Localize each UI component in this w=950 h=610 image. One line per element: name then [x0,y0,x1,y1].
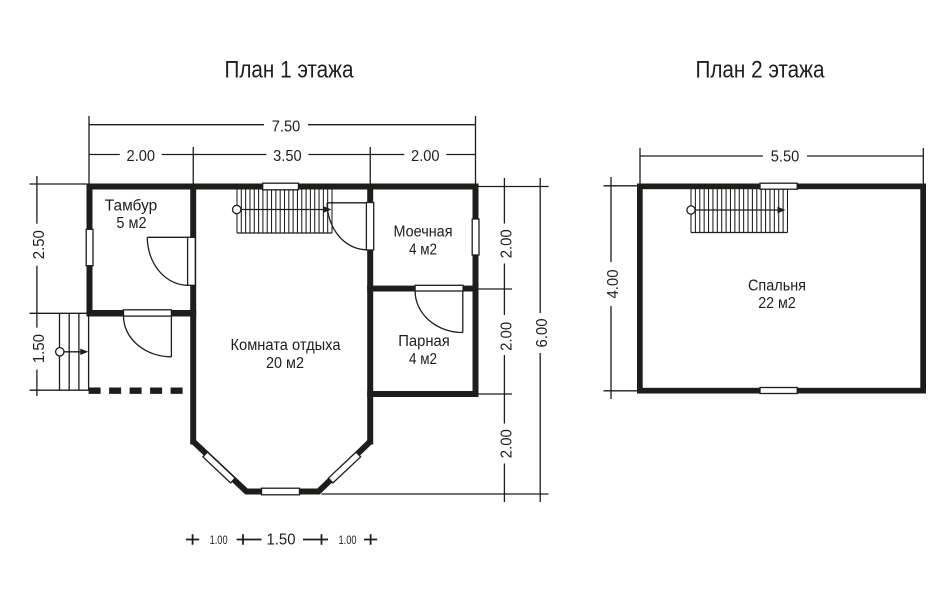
svg-text:4.00: 4.00 [605,269,622,298]
svg-text:2.00: 2.00 [411,148,440,165]
svg-text:4 м2: 4 м2 [409,351,437,368]
svg-text:Тамбур: Тамбур [105,198,157,215]
svg-text:5 м2: 5 м2 [116,215,146,232]
svg-text:1.50: 1.50 [267,532,296,549]
svg-text:План 2 этажа: План 2 этажа [696,57,826,84]
svg-text:2.50: 2.50 [31,230,48,259]
svg-text:20 м2: 20 м2 [266,355,304,372]
svg-text:1.50: 1.50 [31,334,48,363]
svg-text:План 1 этажа: План 1 этажа [225,57,355,84]
svg-text:7.50: 7.50 [272,118,301,135]
svg-text:2.00: 2.00 [498,429,515,458]
svg-text:3.50: 3.50 [273,148,302,165]
svg-text:Моечная: Моечная [394,224,453,241]
svg-text:2.00: 2.00 [127,148,156,165]
svg-text:Комната отдыха: Комната отдыха [231,337,341,354]
svg-text:1.00: 1.00 [210,535,228,547]
svg-text:5.50: 5.50 [771,149,800,166]
svg-text:2.00: 2.00 [498,229,515,258]
svg-text:1.00: 1.00 [339,535,357,547]
svg-text:4 м2: 4 м2 [409,242,437,259]
svg-text:Парная: Парная [398,333,450,350]
svg-text:Спальня: Спальня [748,278,806,295]
svg-text:22 м2: 22 м2 [758,295,796,312]
svg-text:2.00: 2.00 [498,322,515,351]
svg-text:6.00: 6.00 [534,318,551,347]
